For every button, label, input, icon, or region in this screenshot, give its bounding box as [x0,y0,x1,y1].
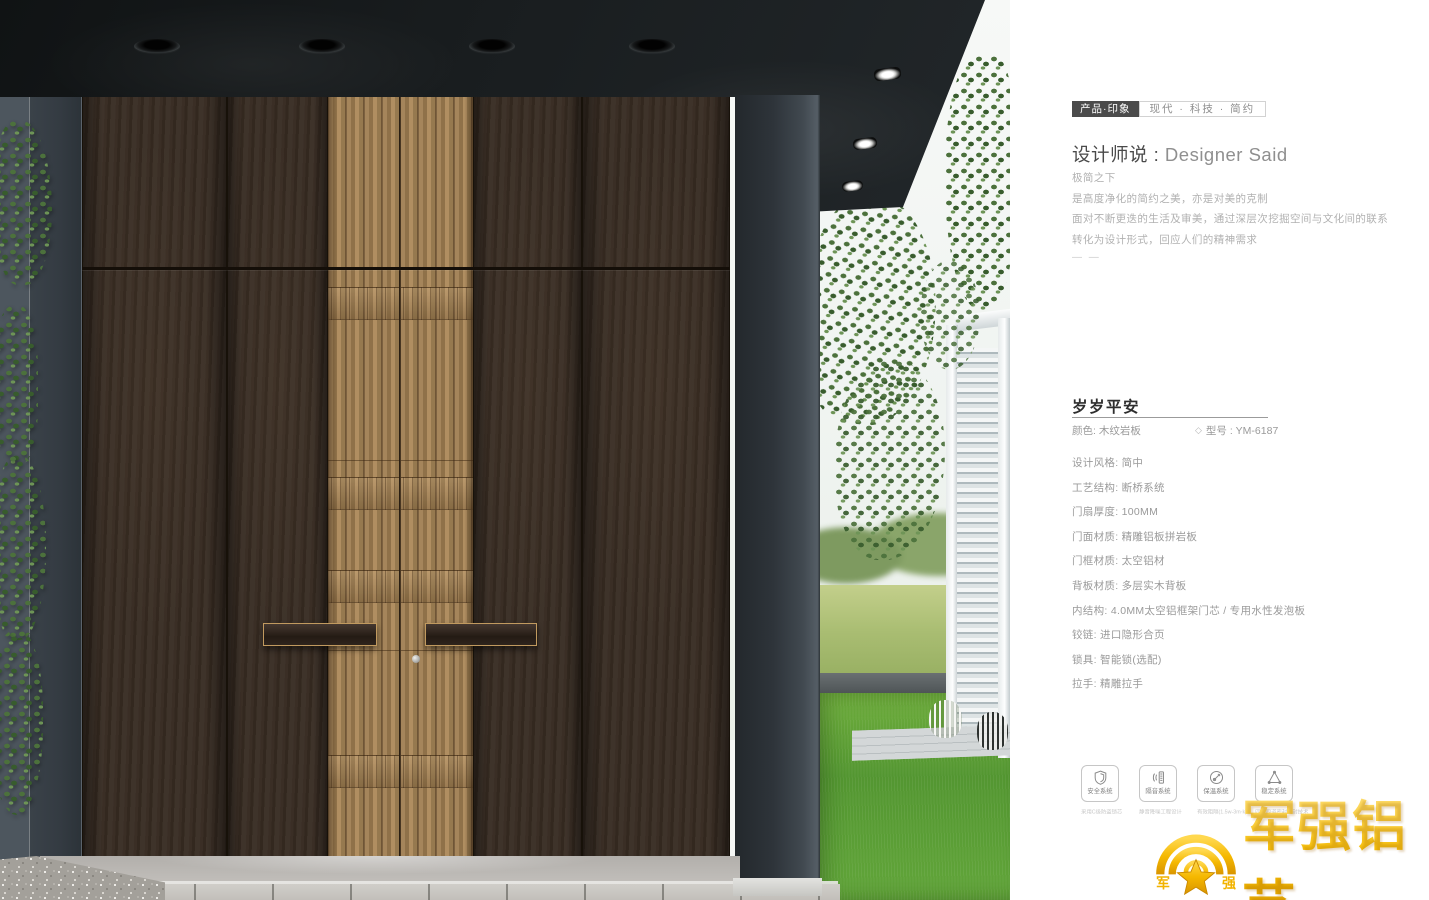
wire-lantern-white [929,700,962,738]
feature-caption: 有效阻隔(1.5w-3m·k) [1197,807,1235,815]
spec-row: 工艺结构: 断桥系统 [1072,483,1412,494]
product-model-row: ◇ 型号 : YM-6187 [1195,423,1278,438]
spec-row: 拉手: 精雕拉手 [1072,679,1412,690]
feature-label: 隔音系统 [1145,787,1170,796]
feature-label: 安全系统 [1087,787,1112,796]
spec-list: 设计风格: 简中 工艺结构: 断桥系统 门扇厚度: 100MM 门面材质: 精雕… [1072,458,1412,704]
tree-canopy [920,260,980,370]
designer-line: 是高度净化的简约之美，亦是对美的克制 [1072,194,1402,205]
door-center-seam [399,97,401,856]
spec-row: 设计风格: 简中 [1072,458,1412,469]
designer-title-cn: 设计师说 : [1072,144,1165,165]
door-scene-photo [0,0,1010,900]
feature-label: 保温系统 [1203,787,1228,796]
feature-safety: 安全系统 采用C级防盗锁芯 [1077,765,1123,816]
pergola-post-right [998,318,1010,758]
door-panel-right-leaf [473,97,582,856]
door-handle-left[interactable] [263,623,377,646]
entry-door [82,97,730,856]
brand-name: 军强铝艺 [1242,782,1429,900]
designer-line: 极简之下 [1072,173,1402,184]
designer-said-title: 设计师说 : Designer Said [1072,141,1288,167]
spec-row: 锁具: 智能锁(选配) [1072,655,1412,666]
brand-emblem-icon: 军 强 [1150,823,1242,899]
emblem-char-right: 强 [1222,873,1236,893]
wire-lantern-dark [977,712,1008,750]
feature-caption: 静音降噪工程设计 [1139,807,1177,815]
ceiling-light-icon [299,39,345,53]
spec-row: 内结构: 4.0MM太空铝框架门芯 / 专用水性发泡板 [1072,606,1412,617]
product-impression-badge: 产品·印象 [1072,101,1139,117]
product-rule [1072,417,1268,418]
ivy-plant [0,305,38,465]
paragraph-dashes: — — [1072,252,1101,263]
feature-box: 保温系统 [1197,765,1235,802]
spec-row: 背板材质: 多层实木背板 [1072,581,1412,592]
feature-caption: 采用C级防盗锁芯 [1081,807,1119,815]
soundproof-icon [1150,769,1167,786]
feature-box: 隔音系统 [1139,765,1177,802]
door-lock[interactable] [412,655,420,663]
brand-logo: 军 强 军强铝艺 [1150,822,1429,900]
ceiling-light-icon [134,39,180,53]
insulation-icon [1208,769,1225,786]
emblem-char-left: 军 [1156,873,1170,893]
pillar-plinth [733,878,822,896]
door-panel-right-fixed [582,97,730,856]
style-tags: 现代 · 科技 · 简约 [1139,101,1267,117]
ceiling-light-icon [629,39,675,53]
designer-paragraph: 极简之下 是高度净化的简约之美，亦是对美的克制 面对不断更迭的生活及审美，通过深… [1072,173,1402,255]
pillar [735,95,820,880]
header-row: 产品·印象 现代 · 科技 · 简约 [1072,101,1266,117]
page: 产品·印象 现代 · 科技 · 简约 设计师说 : Designer Said … [0,0,1429,900]
feature-soundproof: 隔音系统 静音降噪工程设计 [1135,765,1181,816]
door-handle-right[interactable] [425,623,537,646]
spec-row: 门面材质: 精雕铝板拼岩板 [1072,532,1412,543]
info-panel: 产品·印象 现代 · 科技 · 简约 设计师说 : Designer Said … [1010,0,1429,900]
designer-title-en: Designer Said [1165,144,1288,165]
door-panel-left-fixed [82,97,227,856]
spec-row: 门扇厚度: 100MM [1072,507,1412,518]
designer-line: 面对不断更迭的生活及审美，通过深层次挖掘空间与文化间的联系 [1072,214,1402,225]
transom-seam [82,267,730,270]
shield-icon [1092,769,1109,786]
spec-row: 铰链: 进口隐形合页 [1072,630,1412,641]
diamond-icon: ◇ [1195,425,1202,436]
feature-box: 安全系统 [1081,765,1119,802]
product-model: 型号 : YM-6187 [1206,423,1278,438]
door-panel-left-leaf [227,97,328,856]
feature-insulation: 保温系统 有效阻隔(1.5w-3m·k) [1193,765,1239,816]
pergola-louvers [957,348,999,740]
designer-line: 转化为设计形式，回应人们的精神需求 [1072,235,1402,246]
product-name: 岁岁平安 [1072,395,1140,417]
ceiling-light-icon [469,39,515,53]
spec-row: 门框材质: 太空铝材 [1072,556,1412,567]
